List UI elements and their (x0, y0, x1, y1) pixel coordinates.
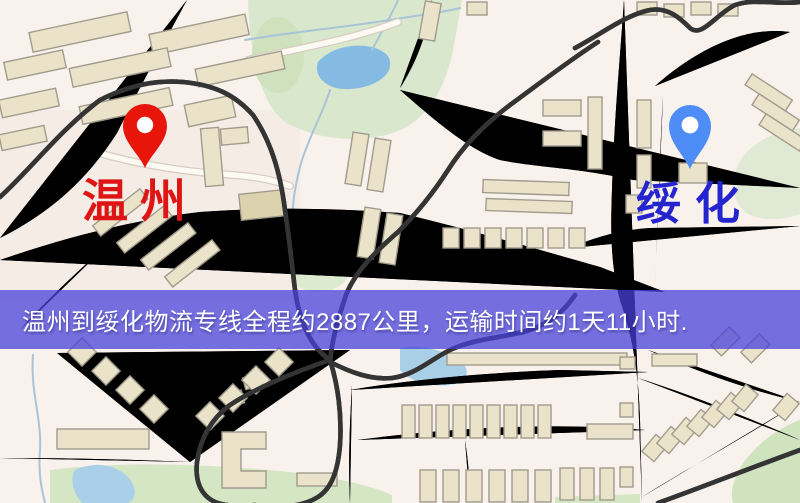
map-screenshot: 温州 绥化 温州到绥化物流专线全程约2887公里，运输时间约1天11小时. (0, 0, 800, 503)
destination-city-label: 绥化 (636, 181, 754, 226)
route-info-banner: 温州到绥化物流专线全程约2887公里，运输时间约1天11小时. (0, 290, 800, 349)
origin-city-label: 温州 (82, 178, 198, 224)
map-canvas[interactable] (0, 0, 800, 503)
route-info-text: 温州到绥化物流专线全程约2887公里，运输时间约1天11小时. (22, 302, 688, 337)
